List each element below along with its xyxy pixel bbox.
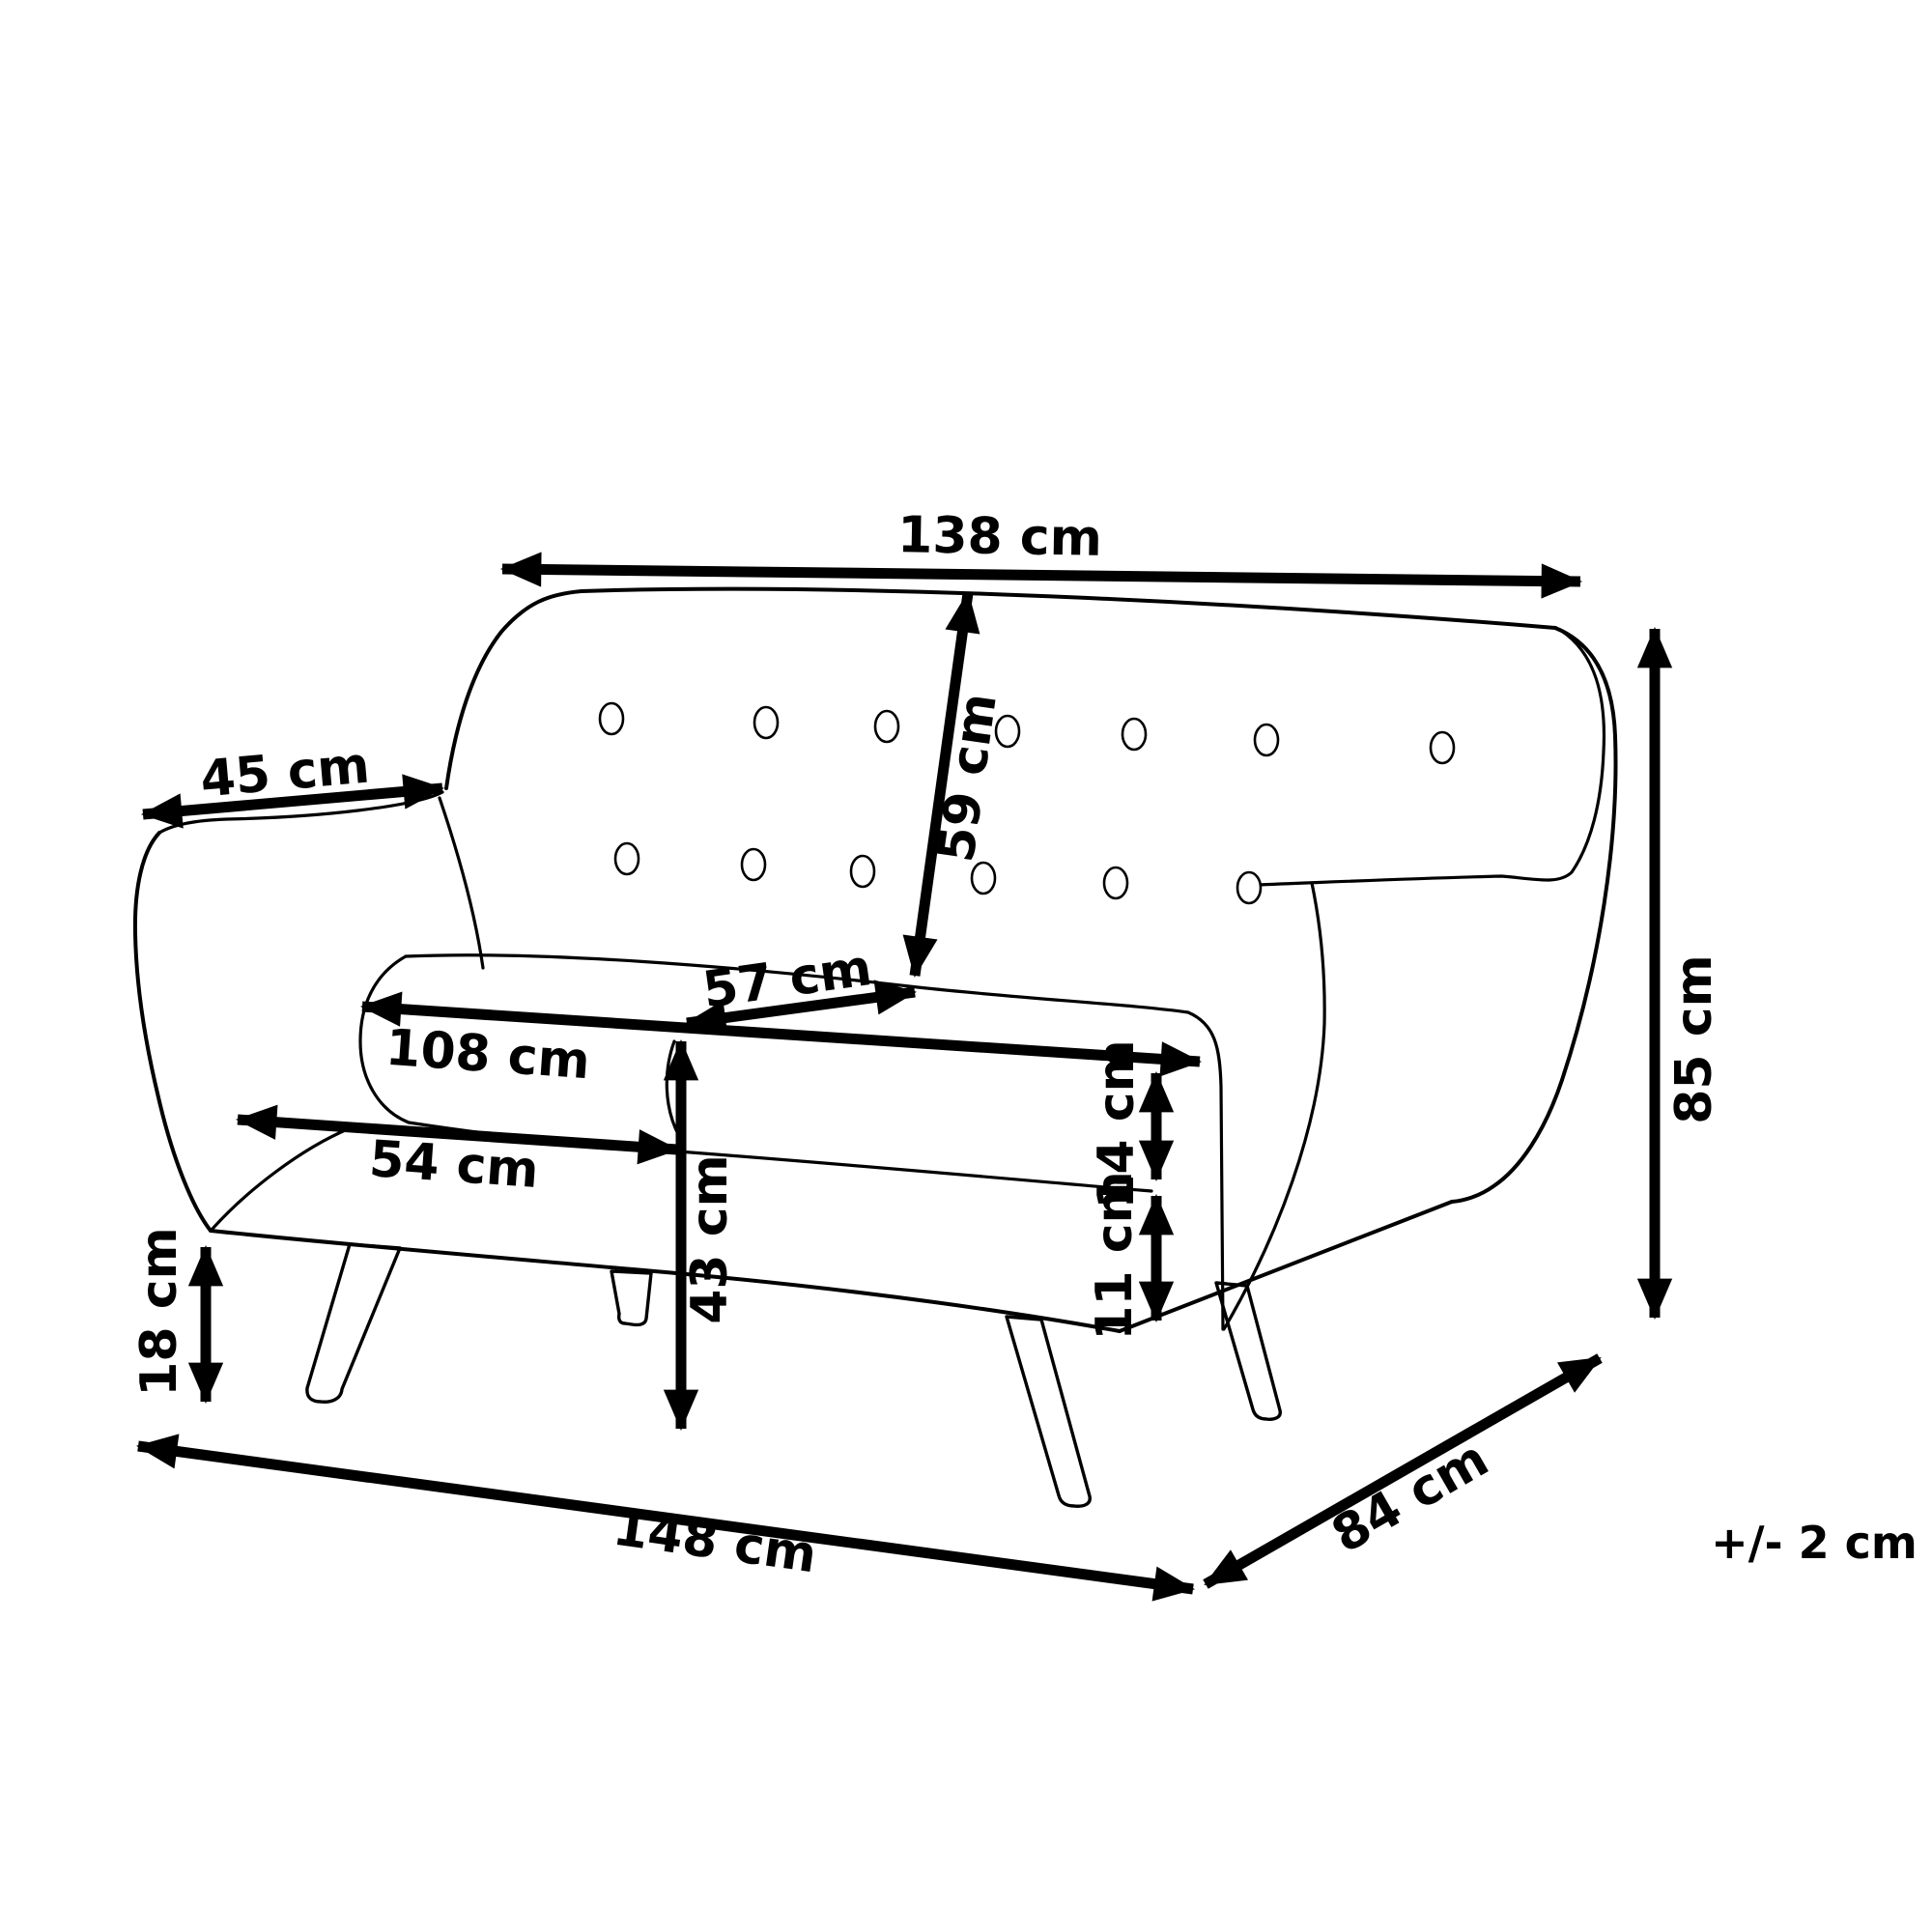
sofa-drawing — [135, 589, 1616, 1507]
tolerance-note: +/- 2 cm — [1711, 1517, 1918, 1569]
tufting-button — [600, 703, 623, 734]
dim-top-width: 138 cm — [502, 506, 1580, 582]
tufting-button — [972, 863, 995, 894]
dim-backrest-height: 59 cm — [915, 593, 1009, 976]
dim-top-width-label: 138 cm — [897, 506, 1103, 568]
dim-seat-width: 108 cm — [362, 1007, 1200, 1091]
dim-overall-height: 85 cm — [1655, 629, 1723, 1318]
dim-overall-width-label: 148 cm — [610, 1499, 820, 1585]
sofa-leg-back-left — [611, 1271, 651, 1324]
sofa-right-rail — [1120, 1202, 1452, 1331]
dim-base-thickness: 11 cm — [1086, 1171, 1156, 1340]
page: 138 cm 45 cm 59 cm 57 cm 108 cm 54 cm 43… — [0, 0, 1932, 1932]
dim-seat-depth-label: 57 cm — [699, 939, 875, 1020]
tufting-button — [875, 711, 898, 742]
dimension-annotations: 138 cm 45 cm 59 cm 57 cm 108 cm 54 cm 43… — [130, 506, 1918, 1589]
dim-backrest-height-label: 59 cm — [927, 690, 1009, 866]
sofa-backrest-outline — [446, 589, 1555, 788]
tufting-button — [1104, 867, 1127, 898]
sofa-right-arm-roll — [1256, 630, 1604, 885]
dim-top-width-arrow — [502, 569, 1580, 582]
tufting-button — [615, 843, 639, 874]
tufting-button — [1122, 719, 1146, 750]
dim-armrest-depth: 45 cm — [143, 736, 442, 814]
sofa-right-arm-outer — [1452, 628, 1616, 1202]
dim-overall-width: 148 cm — [138, 1446, 1193, 1589]
dim-base-thickness-label: 11 cm — [1086, 1171, 1144, 1340]
sofa-right-arm-front — [1224, 883, 1324, 1329]
sofa-left-arm-outer — [135, 833, 211, 1231]
tufting-button — [1431, 732, 1454, 763]
sofa-leg-front-right — [1007, 1317, 1090, 1506]
sofa-left-arm-inner — [440, 798, 483, 968]
tufting-button — [754, 707, 778, 738]
sofa-dimension-diagram: 138 cm 45 cm 59 cm 57 cm 108 cm 54 cm 43… — [0, 0, 1932, 1932]
sofa-left-arm-front — [213, 1128, 350, 1229]
dim-seat-height-label: 43 cm — [681, 1154, 739, 1323]
sofa-tufting-buttons — [600, 703, 1454, 903]
tufting-button — [851, 856, 874, 887]
sofa-leg-back-right — [1216, 1283, 1280, 1419]
dim-seat-depth: 57 cm — [687, 939, 915, 1023]
dim-seat-front-width-label: 54 cm — [367, 1130, 540, 1200]
dim-seat-width-label: 108 cm — [384, 1019, 591, 1092]
sofa-leg-front-left — [307, 1244, 400, 1402]
dim-seat-height: 43 cm — [681, 1041, 739, 1429]
dim-ground-clearance-label: 18 cm — [130, 1227, 188, 1396]
dim-ground-clearance: 18 cm — [130, 1227, 206, 1402]
dim-seat-front-width: 54 cm — [238, 1120, 677, 1200]
tufting-button — [1255, 724, 1278, 755]
tufting-button — [742, 849, 765, 880]
dim-overall-height-label: 85 cm — [1665, 954, 1723, 1123]
tufting-button — [1237, 872, 1261, 903]
